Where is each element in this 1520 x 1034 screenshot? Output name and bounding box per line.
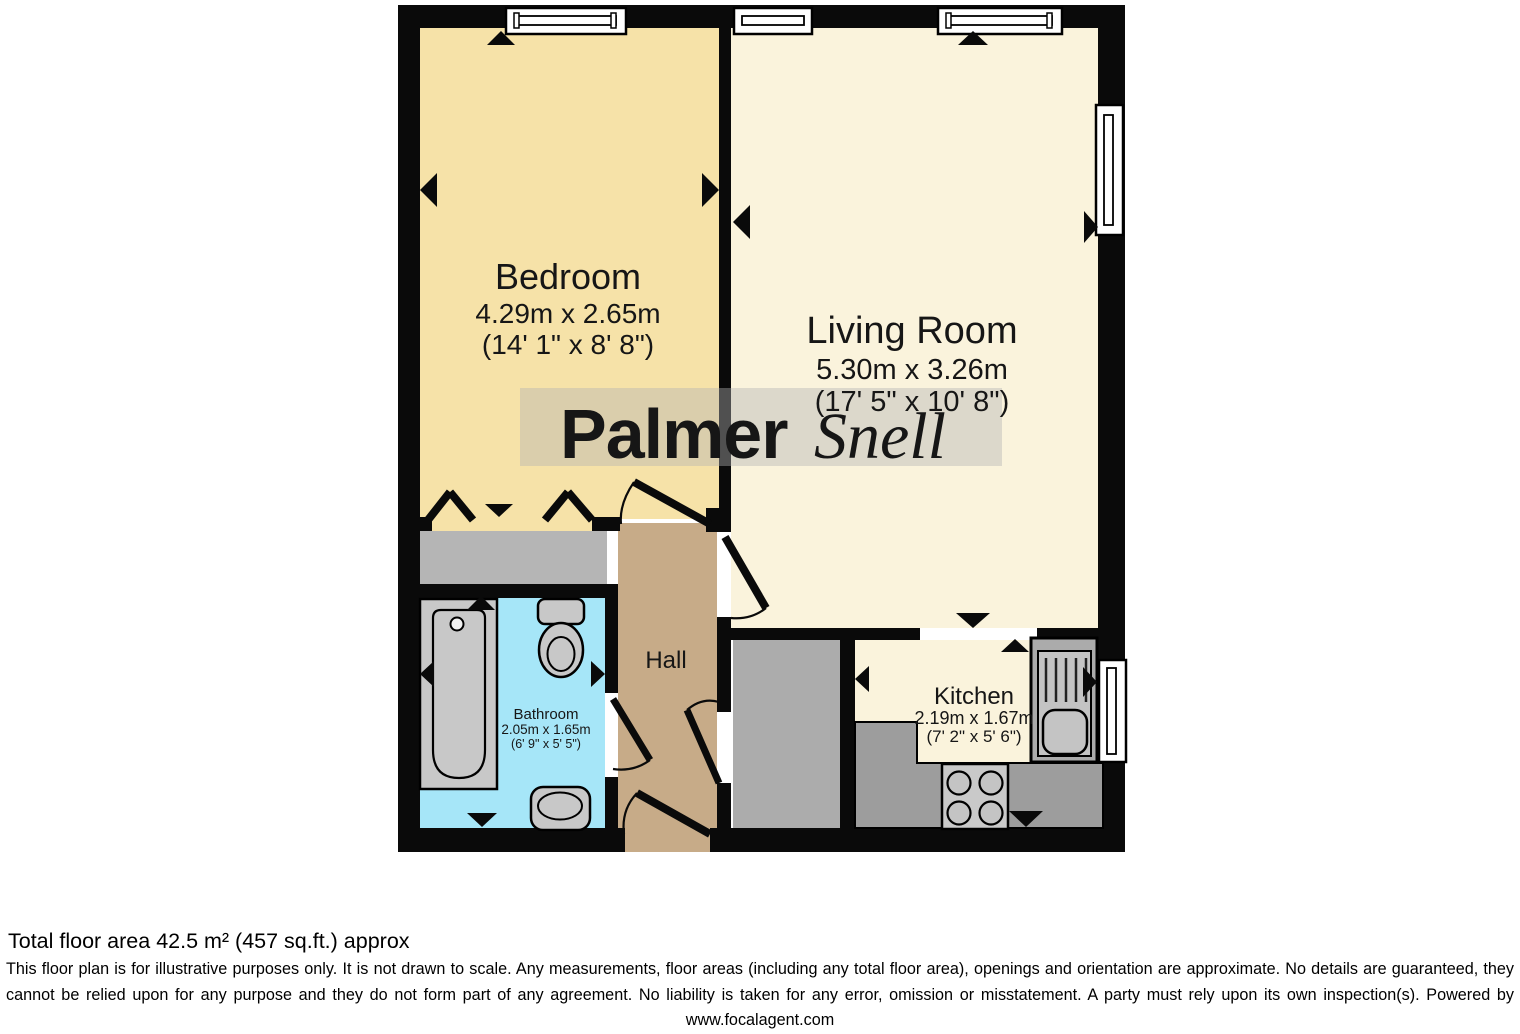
total-floor-area: Total floor area 42.5 m² (457 sq.ft.) ap…	[0, 926, 1520, 956]
watermark-text-palmer: Palmer	[560, 395, 788, 473]
living-room-label: Living Room	[806, 310, 1017, 352]
window-kitchen-right	[1099, 660, 1126, 762]
wall-segment	[592, 517, 620, 531]
cooker-hob-fixture	[942, 764, 1008, 829]
storage-floor	[733, 640, 840, 828]
window-living-right	[1096, 105, 1123, 235]
wall-segment	[398, 584, 618, 598]
window-bedroom-top	[506, 8, 626, 34]
hob-ring	[948, 802, 971, 825]
hall-floor	[618, 523, 717, 828]
bedroom-floor-opening	[430, 519, 592, 533]
bathroom-label: Bathroom	[513, 706, 578, 723]
bath-drain	[451, 618, 464, 631]
bath-fixture	[420, 599, 497, 789]
bathroom-dims-imperial: (6' 9" x 5' 5")	[511, 737, 581, 751]
hob-ring	[980, 802, 1003, 825]
wardrobe-area	[418, 531, 607, 584]
living-room-dims-imperial: (17' 5" x 10' 8")	[815, 386, 1009, 418]
toilet-cistern	[538, 599, 584, 624]
window-living-top-right	[938, 8, 1062, 34]
wall-segment	[717, 783, 731, 852]
wall-segment	[398, 828, 625, 852]
bathroom-sink-fixture	[531, 787, 590, 830]
wall-segment	[710, 828, 1125, 852]
living-room-dims-metric: 5.30m x 3.26m	[816, 354, 1008, 386]
wall-segment	[840, 640, 855, 828]
hob-ring	[980, 772, 1003, 795]
sink-bowl	[1043, 710, 1087, 754]
hall-label: Hall	[645, 647, 686, 674]
bathroom-dims-metric: 2.05m x 1.65m	[501, 722, 590, 737]
bedroom-dims-imperial: (14' 1" x 8' 8")	[482, 329, 654, 360]
wall-segment	[605, 777, 618, 852]
toilet-bowl	[539, 623, 583, 677]
kitchen-label: Kitchen	[934, 683, 1014, 710]
bedroom-label: Bedroom	[495, 256, 641, 297]
wall-segment	[717, 628, 920, 640]
wall-segment	[605, 584, 618, 693]
hob-ring	[948, 772, 971, 795]
kitchen-dims-metric: 2.19m x 1.67m	[914, 708, 1033, 728]
disclaimer-text: This floor plan is for illustrative purp…	[0, 956, 1520, 1034]
kitchen-dims-imperial: (7' 2" x 5' 6")	[926, 727, 1021, 746]
window-living-top-left	[734, 8, 812, 34]
bedroom-dims-metric: 4.29m x 2.65m	[475, 298, 660, 329]
footer: Total floor area 42.5 m² (457 sq.ft.) ap…	[0, 926, 1520, 1034]
toilet-fixture	[538, 599, 584, 677]
wall-segment	[398, 5, 420, 852]
floor-plan: Palmer Snell Bedroom 4.29m x 2.65m (14' …	[0, 0, 1520, 920]
kitchen-sink-unit	[1031, 638, 1097, 762]
